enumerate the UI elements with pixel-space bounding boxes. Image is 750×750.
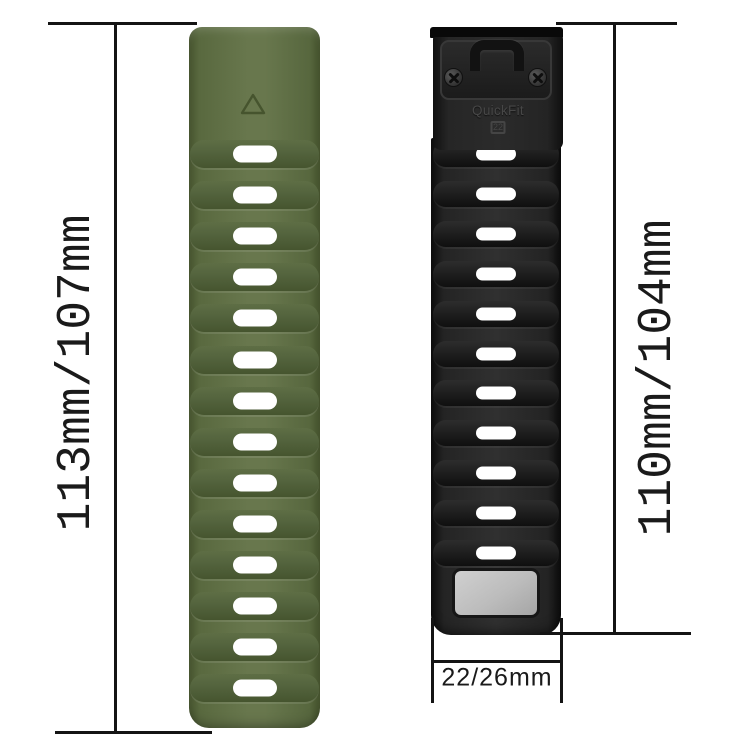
slot-hole (233, 351, 277, 368)
band-ridge (190, 222, 319, 250)
quickfit-connector: QuickFit 22 (433, 37, 563, 150)
slot-hole (476, 467, 516, 480)
metal-keeper-plate (452, 568, 540, 618)
band-ridge (190, 140, 319, 168)
left-dimension-line (114, 23, 117, 734)
right-dimension-line (613, 23, 616, 635)
left-length-label: 113mm/107mm (50, 215, 104, 532)
band-ridge (433, 420, 559, 446)
slot-hole (476, 227, 516, 240)
slot-hole (233, 310, 277, 327)
triangle-up-icon (239, 92, 267, 116)
slot-hole (476, 267, 516, 280)
band-ridge (190, 428, 319, 456)
band-ridge (433, 380, 559, 406)
band-ridge (190, 551, 319, 579)
band-ridge (433, 460, 559, 486)
slot-hole (476, 347, 516, 360)
band-ridge (190, 633, 319, 661)
right-length-label: 110mm/104mm (631, 220, 685, 537)
slot-hole (233, 392, 277, 409)
product-image-canvas: QuickFit 22 113mm/107mm 110mm/104mm 22/2… (0, 0, 750, 750)
band-ridge (190, 674, 319, 702)
band-ridge (433, 500, 559, 526)
slot-hole (233, 146, 277, 163)
band-ridge (190, 304, 319, 332)
band-ridge (433, 341, 559, 367)
slot-hole (233, 433, 277, 450)
slot-hole (233, 228, 277, 245)
latch-arch (470, 40, 524, 71)
slot-hole (233, 474, 277, 491)
screw-icon (528, 68, 547, 87)
band-ridge (433, 301, 559, 327)
slot-hole (233, 187, 277, 204)
band-ridge (433, 540, 559, 566)
slot-hole (476, 307, 516, 320)
band-ridge (190, 592, 319, 620)
left-dimension-top-tick (48, 22, 197, 25)
band-ridge (190, 181, 319, 209)
slot-hole (476, 427, 516, 440)
band-ridge (190, 263, 319, 291)
slot-hole (476, 507, 516, 520)
band-ridge (190, 346, 319, 374)
slot-hole (233, 598, 277, 615)
band-ridge (190, 469, 319, 497)
slot-hole (233, 557, 277, 574)
black-band (431, 138, 561, 635)
slot-hole (476, 187, 516, 200)
band-ridge (190, 387, 319, 415)
slot-hole (233, 680, 277, 697)
green-band (189, 27, 320, 728)
band-ridge (433, 181, 559, 207)
band-ridge (433, 221, 559, 247)
right-dimension-top-tick (556, 22, 677, 25)
left-dimension-bottom-tick (55, 731, 212, 734)
band-width-label: 22/26mm (441, 664, 552, 693)
slot-hole (476, 547, 516, 560)
slot-hole (476, 387, 516, 400)
slot-hole (233, 515, 277, 532)
connector-size-badge: 22 (491, 121, 506, 134)
slot-hole (233, 269, 277, 286)
slot-hole (233, 639, 277, 656)
band-ridge (433, 261, 559, 287)
quickfit-brand-label: QuickFit (433, 103, 563, 118)
band-ridge (190, 510, 319, 538)
screw-icon (444, 68, 463, 87)
